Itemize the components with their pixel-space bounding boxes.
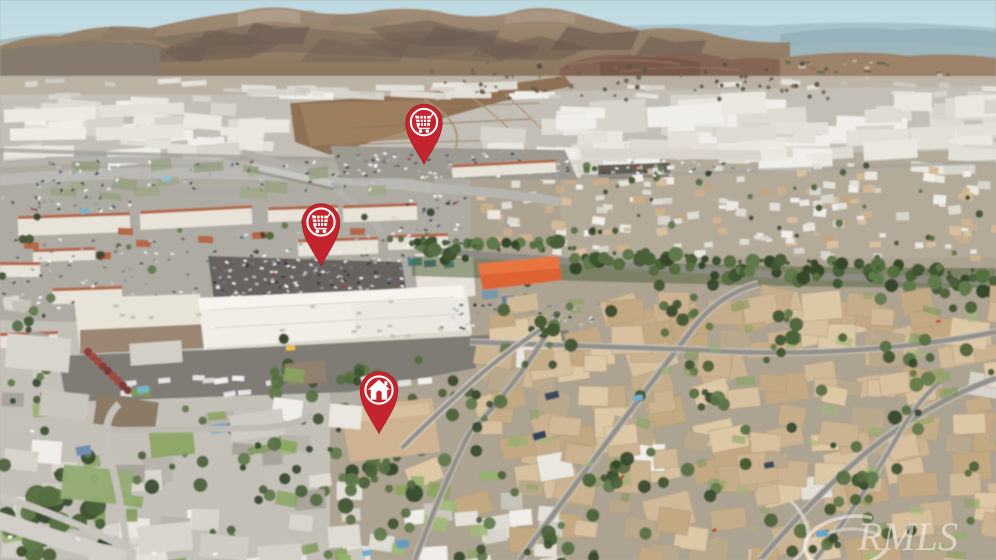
svg-text:RMLS: RMLS <box>857 514 958 559</box>
